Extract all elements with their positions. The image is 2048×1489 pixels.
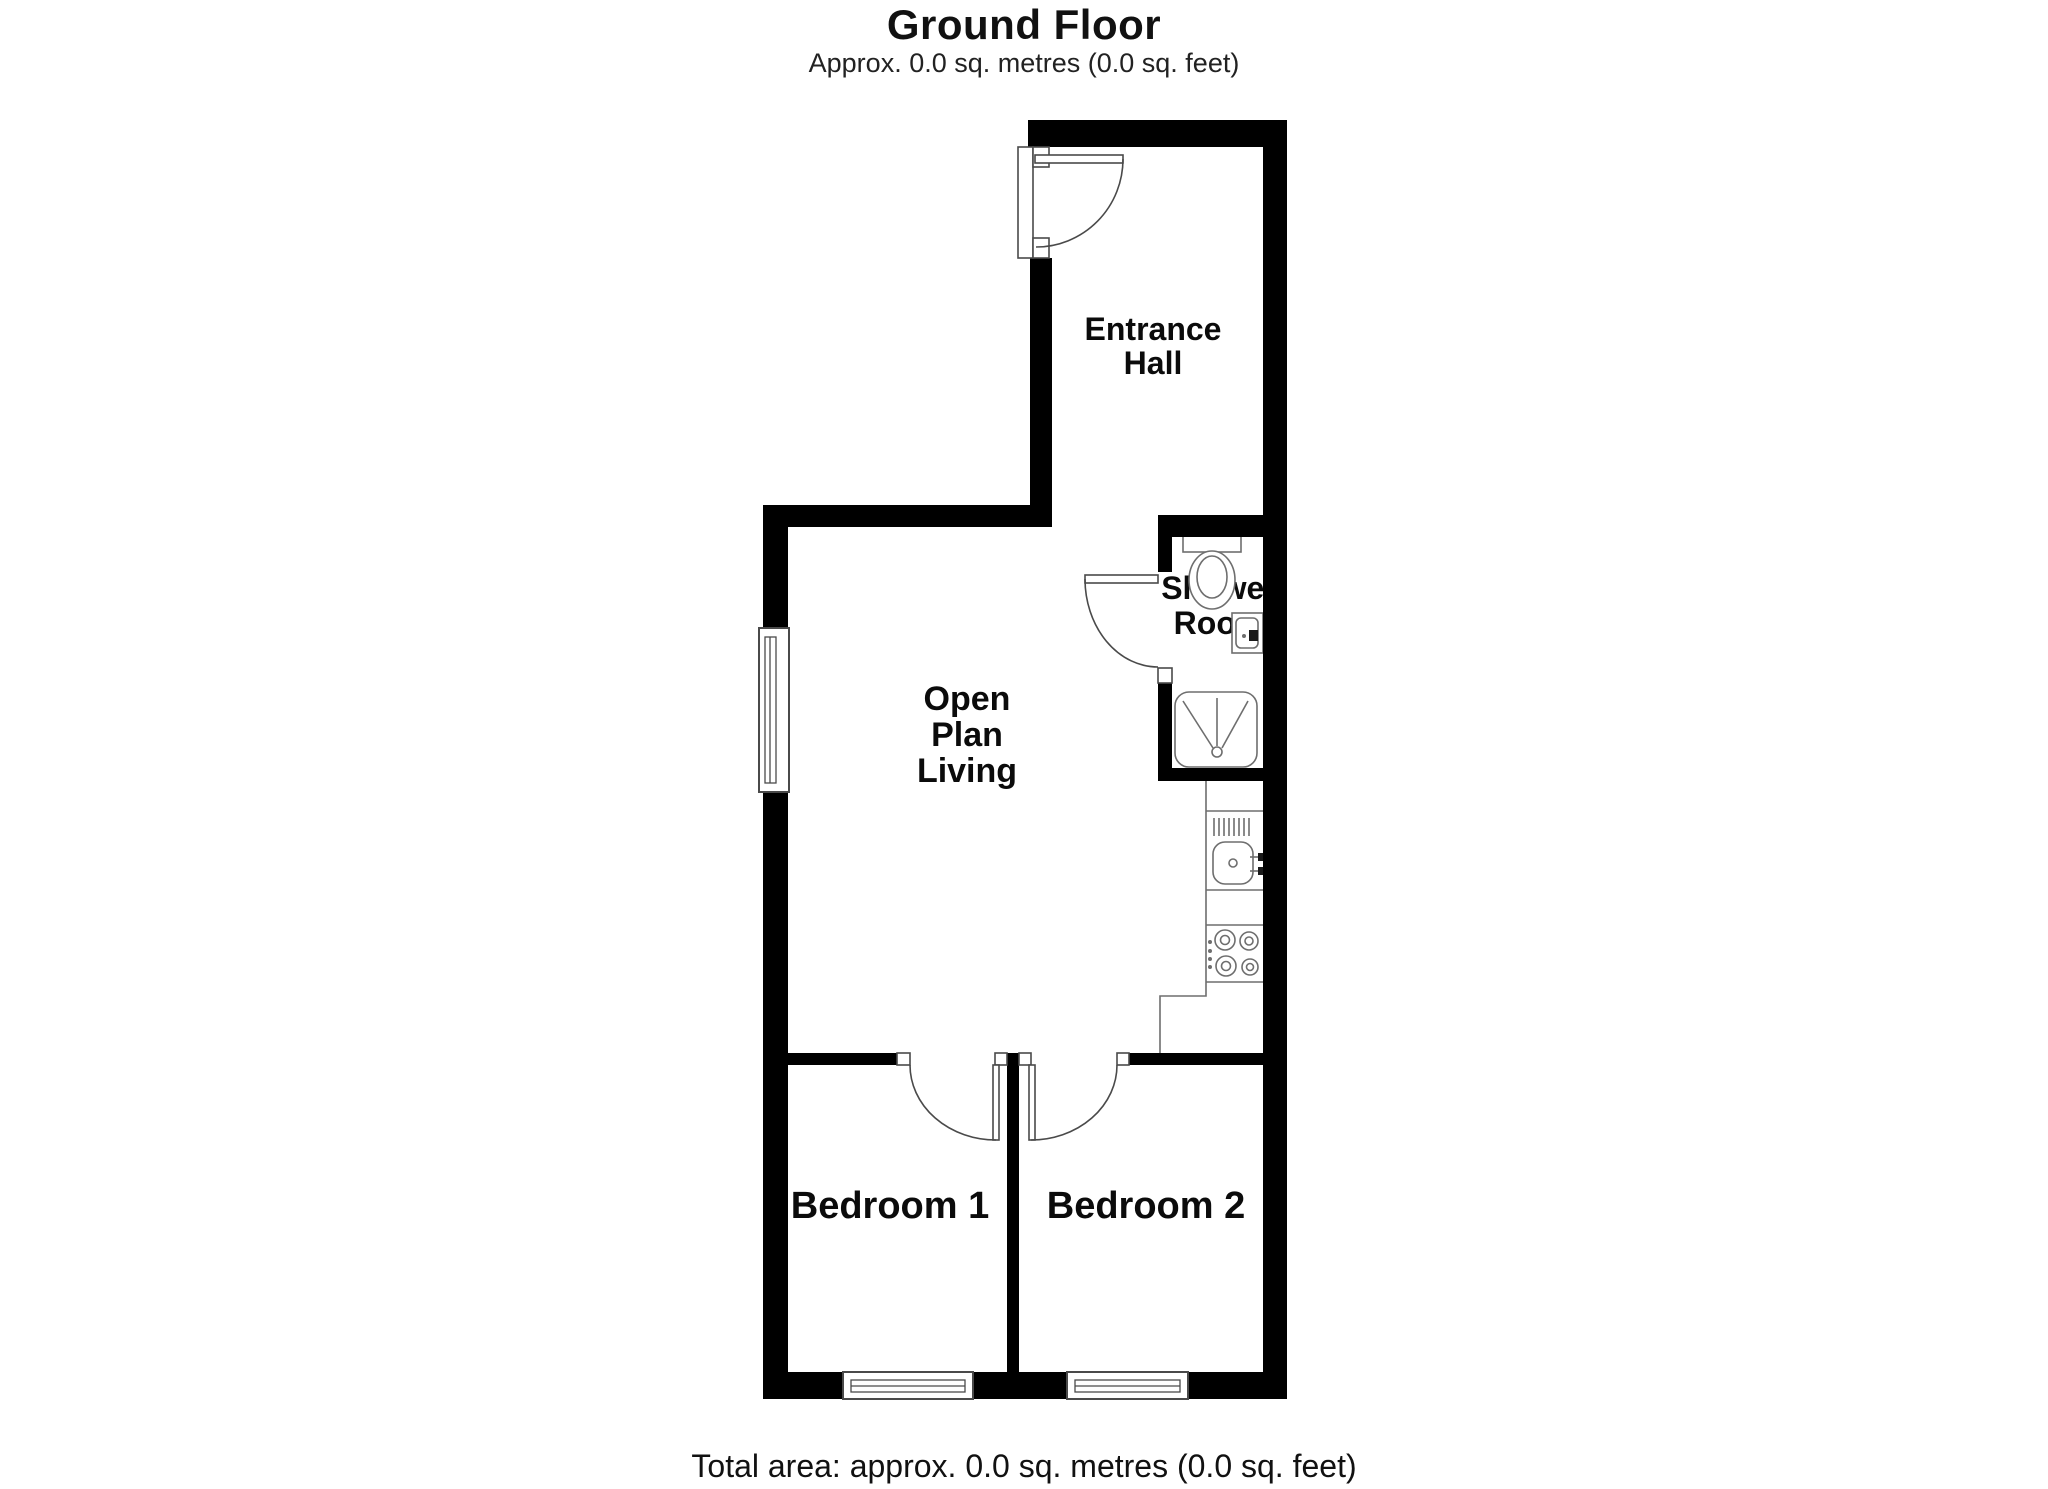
room-label-bedroom-1: Bedroom 1 [791,1185,989,1227]
wall-bottom [763,1372,1287,1399]
bedroom2-door-jamb-right [1117,1053,1129,1065]
entrance-door-frame [1018,147,1033,258]
floorplan-svg: Entrance Hall Shower Room Open Plan Livi… [0,0,2048,1489]
shower-door-leaf [1085,575,1158,583]
wall-shower-bottom [1158,768,1263,781]
bedroom2-window [1067,1372,1188,1399]
wall-bedrooms-top-right [1128,1053,1263,1065]
wall-shower-left-lower [1158,683,1172,768]
bedroom1-door [897,1053,1007,1140]
room-label-open-plan-line3: Living [917,752,1017,790]
living-room-window [759,628,789,792]
entrance-door-swing-arc [1036,159,1123,247]
room-label-open-plan-line2: Plan [931,716,1003,754]
bathroom-sink-icon [1232,613,1263,653]
wall-bedrooms-top-left [763,1053,897,1065]
wall-hall-left [1030,258,1052,527]
bedroom2-door [1019,1053,1129,1140]
bedroom1-door-jamb-left [897,1053,910,1065]
wall-living-top [763,505,1032,527]
wall-shower-top [1158,515,1263,537]
bedroom2-door-swing-arc [1031,1065,1117,1140]
entrance-door-jamb-bottom [1033,238,1049,258]
wall-top [1028,120,1287,147]
room-label-entrance-hall-line1: Entrance [1085,311,1222,347]
shower-door-jamb [1158,668,1172,683]
wall-bedroom-divider [1007,1053,1019,1372]
kitchen-sink-icon [1213,818,1265,884]
bedroom2-door-leaf [1029,1065,1035,1140]
floorplan-page: Ground Floor Approx. 0.0 sq. metres (0.0… [0,0,2048,1489]
bedroom2-door-jamb-left [1019,1053,1031,1065]
entrance-door-leaf [1035,155,1123,163]
entrance-door [1018,147,1123,258]
shower-tray-icon [1175,692,1257,767]
hob-icon [1208,930,1258,976]
bedroom1-door-leaf [993,1065,999,1140]
room-label-bedroom-2: Bedroom 2 [1047,1185,1245,1227]
wall-right [1263,120,1287,1399]
room-label-open-plan-line1: Open [924,680,1011,718]
bedroom1-door-swing-arc [910,1065,996,1140]
shower-door-swing-arc [1085,579,1158,667]
wall-shower-left-upper [1158,537,1172,572]
total-area-text: Total area: approx. 0.0 sq. metres (0.0 … [0,1448,2048,1484]
kitchen-counter-outline [1160,781,1263,1053]
bedroom1-door-jamb-right [995,1053,1007,1065]
bedroom1-window [843,1372,973,1399]
shower-door [1085,575,1172,683]
room-label-entrance-hall-line2: Hall [1124,345,1183,381]
